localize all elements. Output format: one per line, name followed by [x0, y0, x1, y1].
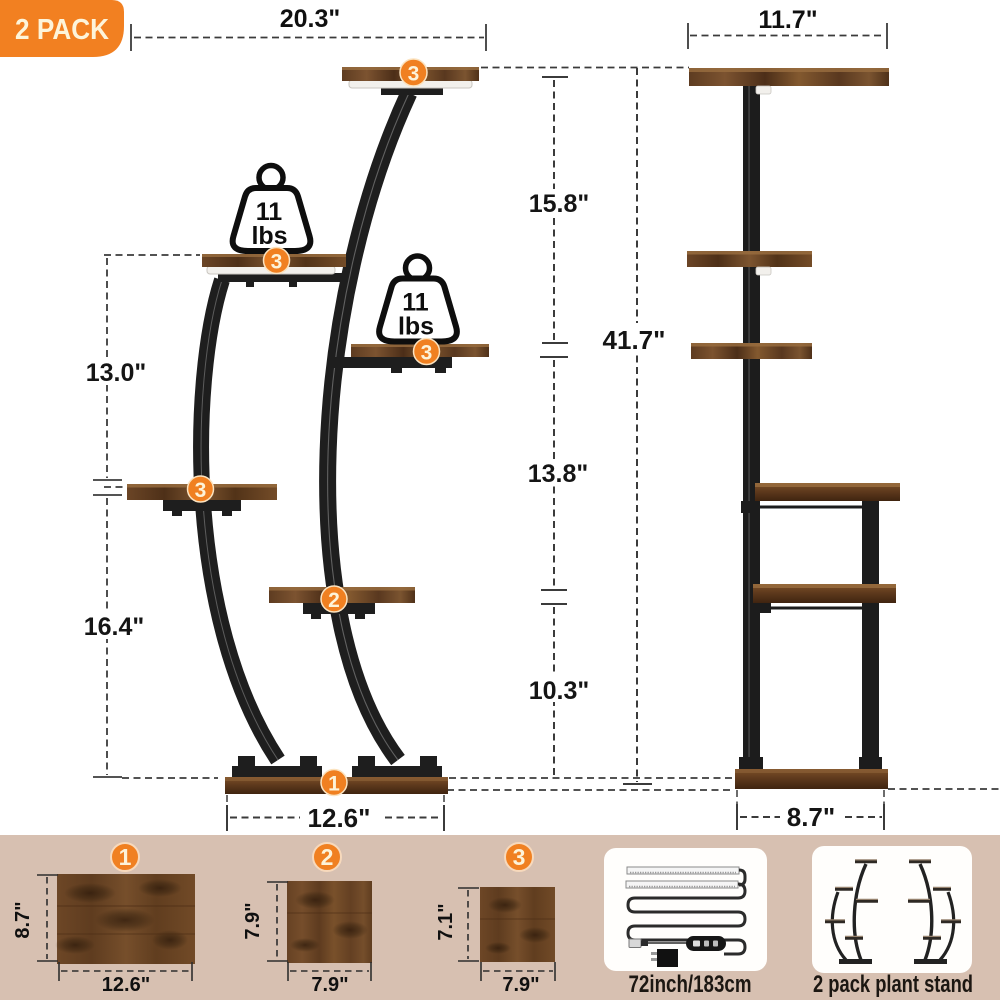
svg-text:11.7": 11.7"	[758, 6, 817, 34]
svg-text:13.0": 13.0"	[86, 359, 147, 387]
svg-text:7.9": 7.9"	[311, 974, 348, 996]
svg-text:13.8": 13.8"	[528, 460, 589, 488]
svg-text:3: 3	[408, 63, 420, 86]
svg-text:7.9": 7.9"	[502, 974, 539, 996]
svg-text:7.9": 7.9"	[242, 902, 264, 939]
svg-text:1: 1	[328, 773, 340, 796]
svg-text:2: 2	[328, 589, 340, 612]
svg-text:72inch/183cm: 72inch/183cm	[629, 971, 752, 998]
svg-text:2 pack plant stand: 2 pack plant stand	[813, 971, 973, 998]
svg-text:20.3": 20.3"	[280, 5, 341, 33]
svg-text:15.8": 15.8"	[529, 190, 590, 218]
svg-text:8.7": 8.7"	[12, 901, 34, 938]
svg-text:3: 3	[513, 844, 526, 870]
svg-text:41.7": 41.7"	[603, 325, 666, 355]
svg-text:7.1": 7.1"	[435, 903, 457, 940]
svg-text:10.3": 10.3"	[529, 677, 590, 705]
svg-text:3: 3	[195, 479, 207, 502]
svg-text:3: 3	[271, 251, 283, 274]
svg-text:12.6": 12.6"	[102, 974, 150, 996]
svg-text:lbs: lbs	[398, 313, 434, 341]
svg-text:16.4": 16.4"	[84, 613, 145, 641]
svg-text:12.6": 12.6"	[308, 803, 371, 833]
svg-text:2: 2	[321, 844, 334, 870]
svg-text:3: 3	[421, 342, 433, 365]
svg-text:8.7": 8.7"	[787, 802, 835, 832]
svg-text:lbs: lbs	[251, 222, 287, 250]
svg-text:1: 1	[119, 844, 132, 870]
svg-text:2 PACK: 2 PACK	[15, 14, 109, 46]
